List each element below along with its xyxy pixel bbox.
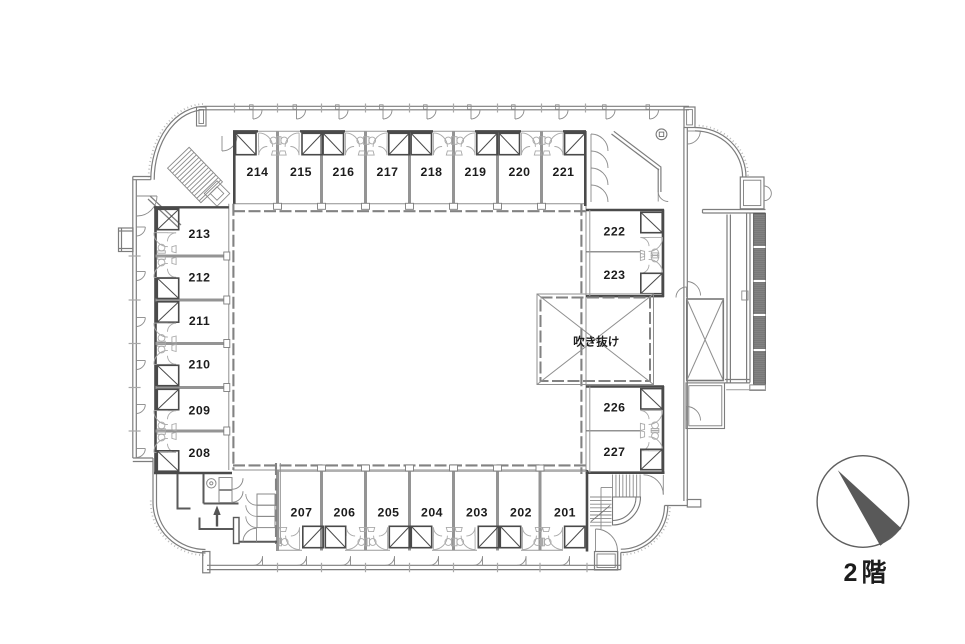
svg-text:226: 226 — [603, 401, 625, 415]
svg-text:222: 222 — [603, 225, 625, 239]
svg-text:218: 218 — [420, 165, 442, 179]
svg-text:210: 210 — [188, 358, 210, 372]
svg-text:216: 216 — [332, 165, 354, 179]
svg-text:219: 219 — [464, 165, 486, 179]
svg-text:221: 221 — [552, 165, 574, 179]
svg-text:217: 217 — [376, 165, 398, 179]
svg-text:208: 208 — [188, 446, 210, 460]
svg-text:213: 213 — [188, 227, 210, 241]
svg-text:201: 201 — [554, 506, 576, 520]
svg-text:227: 227 — [603, 445, 625, 459]
svg-text:215: 215 — [290, 165, 312, 179]
svg-text:204: 204 — [421, 506, 443, 520]
svg-text:220: 220 — [508, 165, 530, 179]
svg-text:209: 209 — [188, 404, 210, 418]
svg-text:202: 202 — [510, 506, 532, 520]
svg-text:2階: 2階 — [844, 559, 891, 587]
svg-text:211: 211 — [189, 314, 210, 328]
svg-text:206: 206 — [333, 506, 355, 520]
svg-text:212: 212 — [188, 271, 210, 285]
svg-text:223: 223 — [603, 268, 625, 282]
svg-text:207: 207 — [290, 506, 312, 520]
svg-text:205: 205 — [377, 506, 399, 520]
svg-text:203: 203 — [466, 506, 488, 520]
svg-text:吹き抜け: 吹き抜け — [573, 334, 619, 348]
svg-text:214: 214 — [246, 165, 268, 179]
